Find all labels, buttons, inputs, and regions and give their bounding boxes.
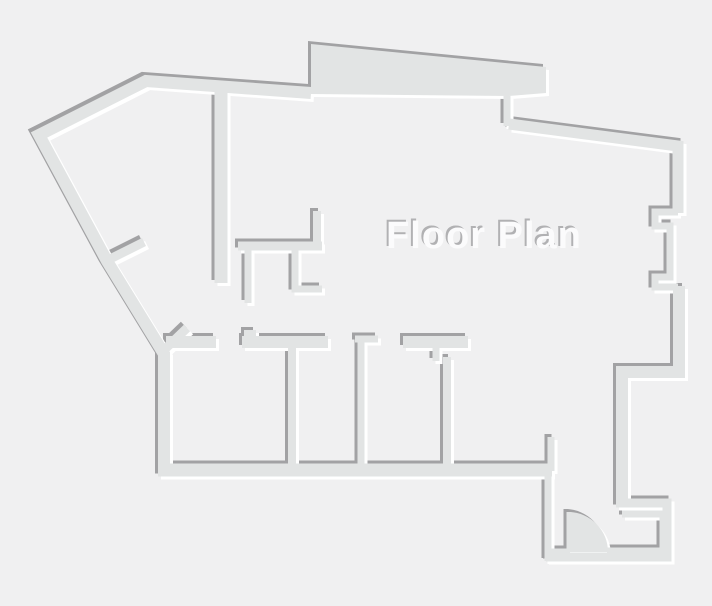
floor-plan-canvas: Floor Plan Floor Plan: [0, 0, 712, 606]
floor-plan-stage: Floor Plan Floor Plan: [0, 0, 712, 606]
outer-left-boundary: [39, 81, 311, 471]
outer-top-right: [509, 124, 678, 213]
outer-left-boundary: [42, 84, 314, 474]
top-thick-band: [311, 44, 546, 96]
door-swing-arc: [569, 512, 608, 552]
walls-main-layer: [39, 44, 679, 561]
floor-plan-title: Floor Plan: [386, 215, 582, 257]
